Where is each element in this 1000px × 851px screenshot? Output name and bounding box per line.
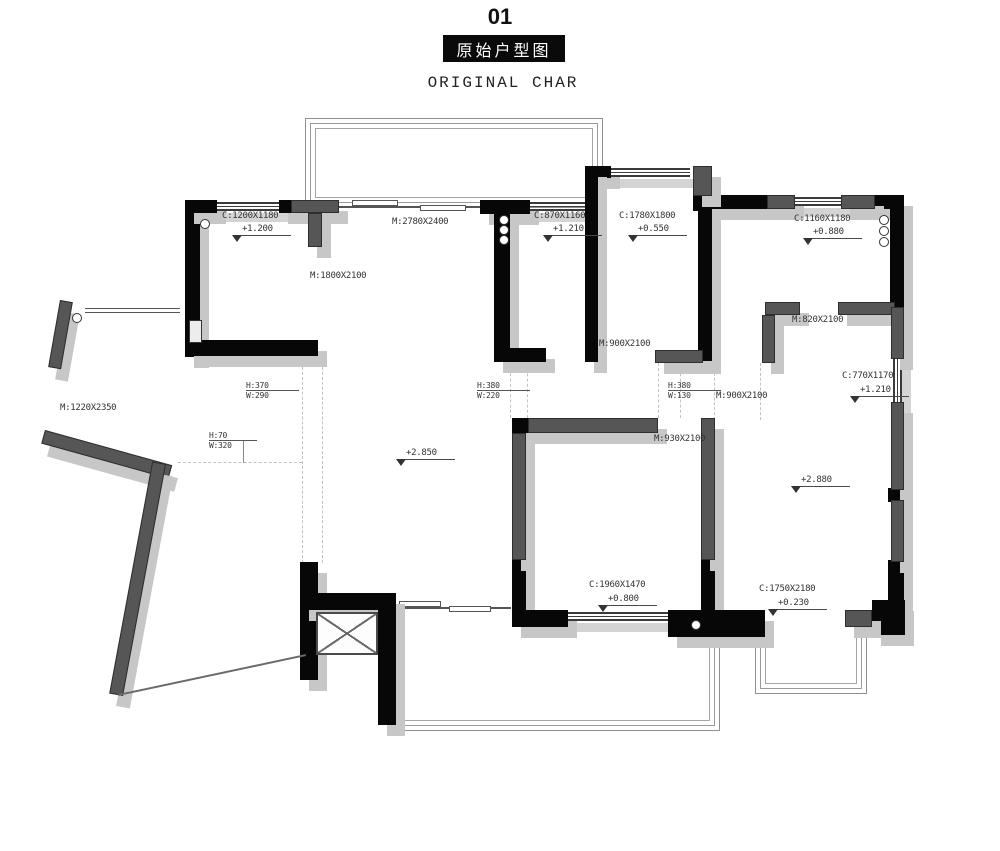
wall-segment bbox=[526, 610, 568, 627]
level-mark-c1160: +0.880 bbox=[805, 227, 862, 239]
wall-segment bbox=[585, 166, 598, 362]
level-mark-2850: +2.850 bbox=[398, 448, 455, 460]
level-mark-c1200: +1.200 bbox=[234, 224, 291, 236]
boundary-line-diagonal bbox=[118, 654, 306, 696]
sliding-door-leaf bbox=[449, 606, 491, 612]
wall-segment bbox=[891, 307, 904, 359]
sliding-door-leaf bbox=[399, 601, 441, 607]
level-mark-c1960: +0.800 bbox=[600, 594, 657, 606]
annotation-window-c1200: C:1200X1180 bbox=[222, 211, 278, 221]
wall-segment-diagonal bbox=[109, 461, 166, 696]
circle-marker bbox=[499, 235, 509, 245]
annotation-door-m900-hall: M:900X2100 bbox=[599, 339, 650, 349]
annotation-window-c1160: C:1160X1180 bbox=[794, 214, 850, 224]
wall-segment bbox=[512, 433, 526, 560]
wall-segment bbox=[891, 402, 904, 490]
window-symbol bbox=[568, 612, 668, 621]
elevator-shaft-cross-symbol bbox=[316, 612, 378, 655]
wall-connector-line bbox=[85, 308, 180, 313]
level-mark-c1780: +0.550 bbox=[630, 224, 687, 236]
title-cn: 原始户型图 bbox=[456, 37, 551, 61]
wall-segment bbox=[700, 610, 765, 637]
wall-segment bbox=[841, 195, 875, 209]
level-mark-c770: +1.210 bbox=[852, 385, 909, 397]
level-mark-c870: +1.210 bbox=[545, 224, 602, 236]
construction-dashed-line bbox=[178, 462, 302, 463]
window-symbol bbox=[795, 197, 843, 206]
wall-segment bbox=[710, 195, 767, 209]
wall-segment bbox=[512, 560, 526, 627]
wall-segment-diagonal bbox=[48, 300, 73, 369]
wall-segment bbox=[838, 302, 895, 315]
wall-segment bbox=[765, 302, 800, 315]
annotation-beam-h70: H:70W:320 bbox=[209, 431, 257, 450]
wall-segment bbox=[891, 500, 904, 562]
balcony-railing-southeast bbox=[755, 627, 867, 694]
wall-segment bbox=[494, 348, 546, 362]
wall-segment bbox=[767, 195, 795, 209]
wall-segment bbox=[512, 418, 528, 433]
annotation-beam-h380a: H:380W:220 bbox=[477, 381, 530, 400]
window-symbol bbox=[217, 202, 279, 211]
annotation-window-c1960: C:1960X1470 bbox=[589, 580, 645, 590]
annotation-door-m1220: M:1220X2350 bbox=[60, 403, 116, 413]
annotation-door-m2780: M:2780X2400 bbox=[392, 217, 448, 227]
wall-segment bbox=[693, 166, 712, 196]
wall-inset-window bbox=[189, 320, 202, 343]
level-mark-2880: +2.880 bbox=[793, 475, 850, 487]
title-en: ORIGINAL CHAR bbox=[0, 74, 1000, 92]
sliding-door-leaf bbox=[352, 200, 398, 206]
wall-segment bbox=[308, 213, 322, 247]
level-mark-c1750: +0.230 bbox=[770, 598, 827, 610]
wall-segment bbox=[890, 195, 904, 309]
wall-segment bbox=[872, 600, 905, 635]
wall-segment bbox=[528, 418, 658, 433]
circle-marker bbox=[879, 215, 889, 225]
wall-segment bbox=[291, 200, 339, 213]
annotation-door-m900-right: M:900X2100 bbox=[716, 391, 767, 401]
construction-dashed-line bbox=[322, 362, 323, 563]
wall-segment bbox=[185, 340, 318, 356]
circle-marker bbox=[200, 219, 210, 229]
window-symbol bbox=[530, 202, 586, 211]
annotation-door-m930: M:930X2100 bbox=[654, 434, 705, 444]
wall-segment bbox=[185, 200, 217, 213]
annotation-beam-h380b: H:380W:130 bbox=[668, 381, 721, 400]
wall-segment bbox=[698, 210, 712, 363]
annotation-door-m820: M:820X2100 bbox=[792, 315, 843, 325]
circle-marker bbox=[499, 215, 509, 225]
wall-segment bbox=[845, 610, 872, 627]
wall-segment bbox=[655, 350, 703, 363]
sheet-number: 01 bbox=[0, 4, 1000, 30]
title-box: 原始户型图 bbox=[443, 35, 565, 62]
construction-dashed-line bbox=[658, 363, 659, 418]
annotation-door-m1800: M:1800X2100 bbox=[310, 271, 366, 281]
sliding-door-leaf bbox=[420, 205, 466, 211]
annotation-beam-h370: H:370W:290 bbox=[246, 381, 299, 400]
circle-marker bbox=[879, 226, 889, 236]
wall-segment bbox=[378, 593, 396, 725]
wall-segment bbox=[762, 315, 775, 363]
annotation-window-c870: C:870X1160 bbox=[534, 211, 585, 221]
circle-marker bbox=[691, 620, 701, 630]
circle-marker bbox=[72, 313, 82, 323]
annotation-window-c1750: C:1750X2180 bbox=[759, 584, 815, 594]
annotation-window-c770: C:770X1170 bbox=[842, 371, 893, 381]
circle-marker bbox=[879, 237, 889, 247]
wall-segment bbox=[480, 200, 530, 214]
circle-marker bbox=[499, 225, 509, 235]
balcony-railing-top bbox=[305, 118, 603, 208]
annotation-window-c1780: C:1780X1800 bbox=[619, 211, 675, 221]
window-symbol bbox=[605, 168, 690, 177]
construction-dashed-line bbox=[302, 362, 303, 563]
floor-plan-sheet: 01 原始户型图 ORIGINAL CHAR bbox=[0, 0, 1000, 851]
